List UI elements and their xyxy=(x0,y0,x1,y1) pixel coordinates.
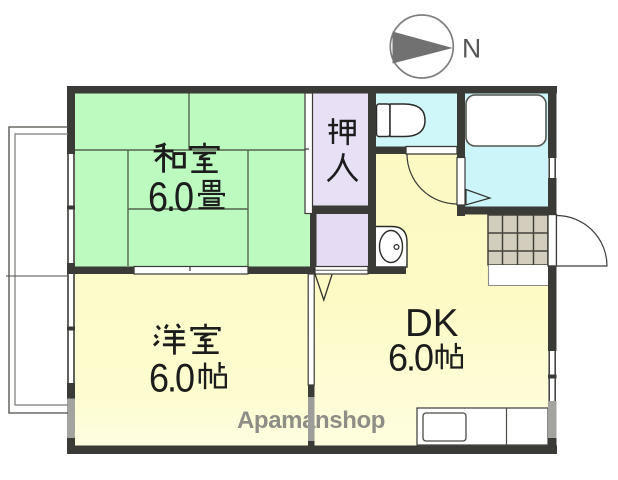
svg-text:6.0: 6.0 xyxy=(388,337,434,379)
svg-text:6.0: 6.0 xyxy=(149,357,194,401)
svg-text:N: N xyxy=(462,34,481,64)
svg-text:6.0: 6.0 xyxy=(148,175,194,221)
